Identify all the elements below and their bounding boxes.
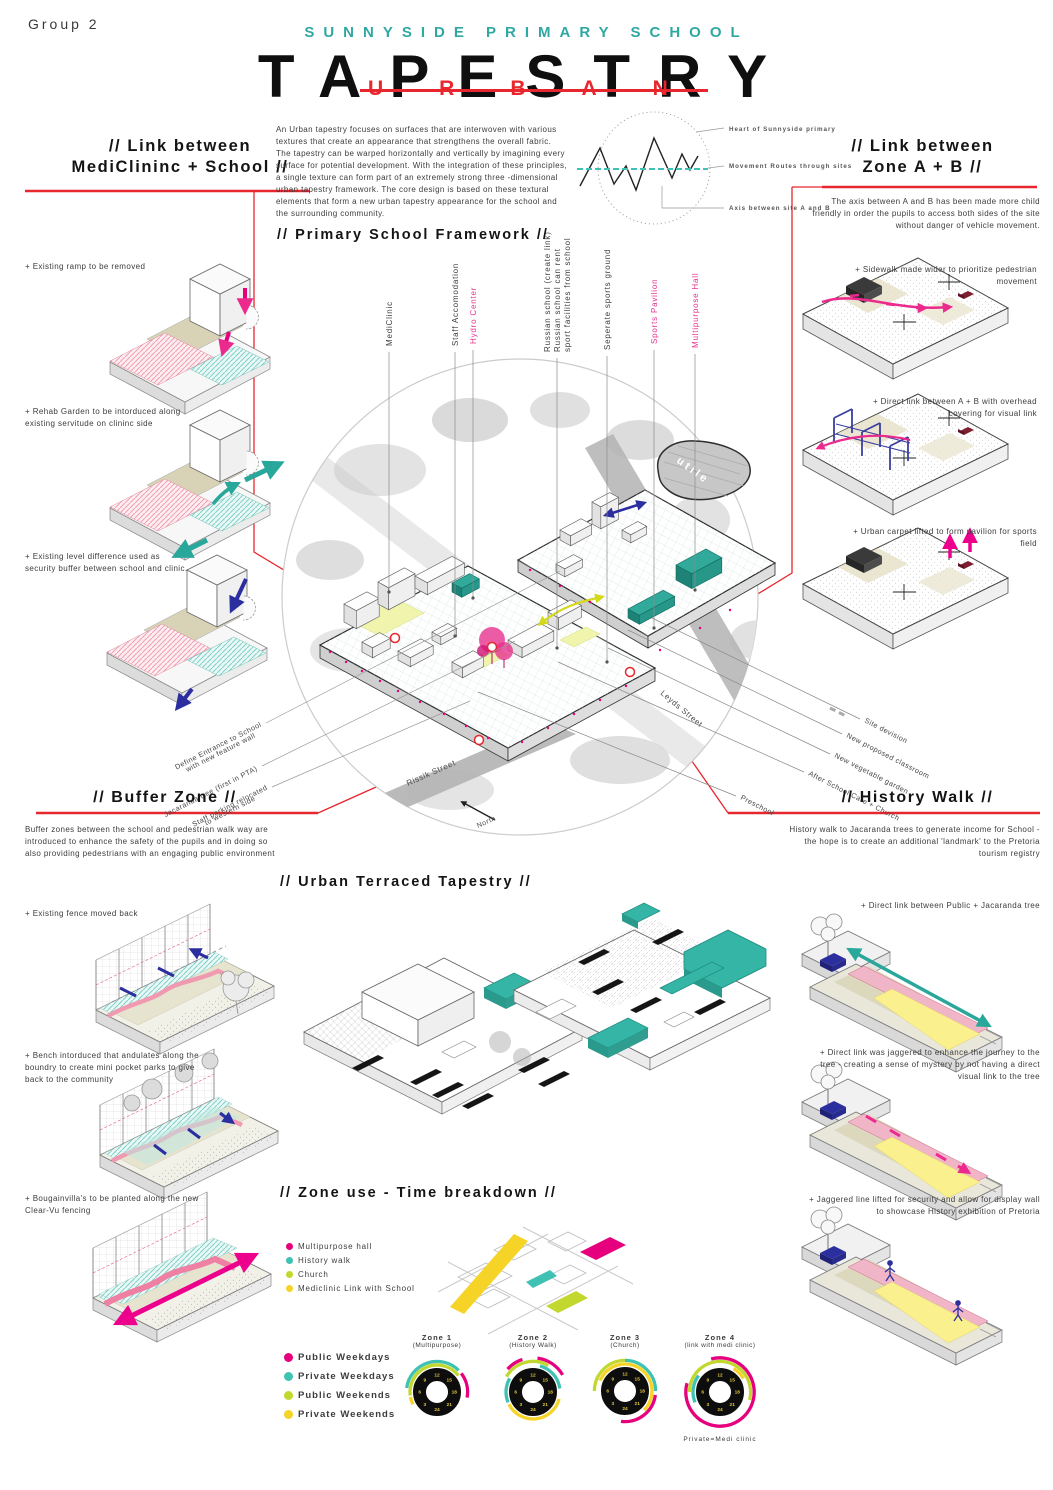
legend-label-private-weekdays: Private Weekdays — [298, 1371, 395, 1382]
svg-text:24: 24 — [717, 1407, 723, 1413]
concept-label-heart: Heart of Sunnyside primary — [729, 126, 836, 133]
svg-text:21: 21 — [543, 1402, 549, 1408]
heading-terraced: // Urban Terraced Tapestry // — [280, 874, 532, 890]
clock-title-zone3: Zone 3 — [570, 1333, 680, 1342]
svg-text:9: 9 — [519, 1377, 522, 1383]
svg-text:15: 15 — [447, 1377, 453, 1383]
annotation-sidewalk: + Sidewalk made wider to prioritize pede… — [855, 264, 1037, 288]
heading-history-walk: // History Walk // — [790, 788, 1045, 809]
legend-item-church: Church — [286, 1270, 415, 1279]
annotation-bench: + Bench intorduced that andulates along … — [25, 1050, 200, 1086]
svg-text:21: 21 — [447, 1402, 453, 1408]
clock-chart-zone4: 1215182124369 — [678, 1350, 762, 1439]
heading-framework: // Primary School Framework // — [277, 227, 549, 243]
svg-text:3: 3 — [519, 1402, 522, 1408]
map-label-russian-2: Russian school can rent — [553, 248, 562, 352]
legend-dot-multipurpose — [286, 1243, 293, 1250]
intro-paragraph: An Urban tapestry focuses on surfaces th… — [276, 124, 568, 220]
street-label-leyds: Leyds Street — [659, 689, 705, 730]
legend-dot-private-weekdays — [284, 1372, 293, 1381]
legend-item-private-weekends: Private Weekends — [284, 1409, 395, 1420]
heading-zone-ab: // Link between Zone A + B // — [800, 136, 1045, 179]
annotation-fence-moved: + Existing fence moved back — [25, 908, 200, 920]
clinic-diagram-1 — [110, 264, 270, 414]
svg-text:12: 12 — [717, 1372, 723, 1378]
svg-text:12: 12 — [530, 1372, 536, 1378]
clock-footnote: Private=Medi clinic — [655, 1436, 785, 1443]
map-top-labels: MediClinic Staff Accomodation Hydro Cent… — [385, 231, 700, 663]
map-label-preschool: Preschool — [739, 793, 776, 818]
annotation-ramp: + Existing ramp to be removed — [25, 261, 185, 273]
annotation-level-difference: + Existing level difference used as secu… — [25, 551, 190, 575]
legend-label-public-weekdays: Public Weekdays — [298, 1352, 390, 1363]
ramp-diagram-3 — [802, 1207, 1002, 1365]
clock-chart-zone2: 1215182124369 — [491, 1350, 575, 1439]
blob-label: utile — [674, 455, 711, 487]
clock-sub-zone4: (link with medi clinic) — [665, 1342, 775, 1349]
poster-page: Heart of Sunnyside primary Movement Rout… — [0, 0, 1053, 1490]
legend-dot-church — [286, 1271, 293, 1278]
utile-blob: utile — [658, 441, 751, 500]
legend-time: Public Weekdays Private Weekdays Public … — [284, 1352, 395, 1425]
svg-text:15: 15 — [730, 1377, 736, 1383]
legend-dot-public-weekends — [284, 1391, 293, 1400]
legend-label-private-weekends: Private Weekends — [298, 1409, 395, 1420]
heading-zone-use: // Zone use - Time breakdown // — [280, 1185, 557, 1201]
clinic-diagram-2 — [110, 410, 279, 560]
svg-text:18: 18 — [548, 1390, 554, 1396]
annotation-overhead-cover: + Direct link between A + B with overhea… — [847, 396, 1037, 420]
svg-text:18: 18 — [452, 1390, 458, 1396]
terraced-tapestry-illustration — [304, 903, 770, 1114]
svg-text:9: 9 — [423, 1377, 426, 1383]
map-label-hydro: Hydro Center — [469, 287, 478, 344]
legend-item-mediclinic-link: Mediclinic Link with School — [286, 1284, 415, 1293]
svg-text:12: 12 — [434, 1372, 440, 1378]
map-label-pavilion: Sports Pavilion — [650, 279, 659, 344]
zone-ab-paragraph: The axis between A and B has been made m… — [812, 196, 1040, 232]
svg-text:3: 3 — [611, 1401, 614, 1407]
aerial-texture — [296, 392, 790, 834]
svg-text:12: 12 — [622, 1371, 628, 1377]
clock-title-zone1: Zone 1 — [382, 1333, 492, 1342]
legend-label-church: Church — [298, 1270, 329, 1279]
svg-text:3: 3 — [423, 1402, 426, 1408]
legend-label-multipurpose: Multipurpose hall — [298, 1242, 372, 1251]
annotation-rehab-garden: + Rehab Garden to be intorduced along ex… — [25, 406, 190, 430]
svg-text:6: 6 — [701, 1390, 704, 1396]
annotation-bougainvilla: + Bougainvilla's to be planted along the… — [25, 1193, 210, 1217]
heading-zone-ab-line2: Zone A + B // — [800, 157, 1045, 178]
map-label-entrance-1: Define Entrance to School — [173, 720, 263, 772]
svg-text:3: 3 — [706, 1402, 709, 1408]
svg-text:9: 9 — [706, 1377, 709, 1383]
svg-text:24: 24 — [530, 1407, 536, 1413]
framework-map: utile MediClinic Staff Accomodation Hydr… — [162, 231, 931, 835]
map-label-russian-3: sport facilities from school — [563, 238, 572, 352]
map-label-mediclinic: MediClinic — [385, 301, 394, 346]
legend-item-historywalk: History walk — [286, 1256, 415, 1265]
clock-sub-zone3: (Church) — [570, 1342, 680, 1349]
legend-label-historywalk: History walk — [298, 1256, 351, 1265]
zone-use-plan — [438, 1227, 633, 1334]
clinic-diagram-3 — [107, 555, 267, 707]
legend-label-mediclinic-link: Mediclinic Link with School — [298, 1284, 415, 1293]
map-label-russian-1: Russian school (create link) — [543, 231, 552, 352]
svg-text:24: 24 — [622, 1406, 628, 1412]
site-model — [320, 490, 775, 761]
svg-text:18: 18 — [735, 1390, 741, 1396]
svg-text:21: 21 — [730, 1402, 736, 1408]
heading-zone-ab-line1: // Link between — [800, 136, 1045, 157]
street-label-rissik: Rissik Street — [405, 758, 457, 788]
legend-item-public-weekdays: Public Weekdays — [284, 1352, 395, 1363]
heading-buffer-zone: // Buffer Zone // — [20, 788, 310, 809]
clock-title-zone4: Zone 4 — [665, 1333, 775, 1342]
map-label-staff: Staff Accomodation — [451, 263, 460, 346]
map-label-classroom: New proposed classroom — [845, 731, 931, 781]
svg-text:18: 18 — [640, 1389, 646, 1395]
history-walk-paragraph: History walk to Jacaranda trees to gener… — [788, 824, 1040, 860]
school-title: SUNNYSIDE PRIMARY SCHOOL — [0, 24, 1053, 41]
clock-chart-zone1: 1215182124369 — [395, 1350, 479, 1439]
clock-chart-zone3: 1215182124369 — [583, 1349, 667, 1438]
clock-sub-zone1: (Multipurpose) — [382, 1342, 492, 1349]
annotation-urban-carpet: + Urban carpet lifted to form pavilion f… — [852, 526, 1037, 550]
svg-text:6: 6 — [606, 1389, 609, 1395]
legend-dot-historywalk — [286, 1257, 293, 1264]
legend-item-private-weekdays: Private Weekdays — [284, 1371, 395, 1382]
annotation-jaggered-link: + Direct link was jaggered to enhance th… — [802, 1047, 1040, 1083]
map-label-site-devision: Site devision — [863, 716, 909, 745]
map-label-multipurpose: Multipurpose Hall — [691, 273, 700, 348]
svg-text:21: 21 — [635, 1401, 641, 1407]
map-label-sports-ground: Seperate sports ground — [603, 249, 612, 350]
legend-label-public-weekends: Public Weekends — [298, 1390, 391, 1401]
map-street-labels: Leyds Street Rissik Street North — [405, 689, 704, 830]
map-label-entrance-2: with new feature wall — [183, 731, 257, 775]
svg-text:24: 24 — [434, 1407, 440, 1413]
svg-text:9: 9 — [611, 1376, 614, 1382]
buffer-zone-paragraph: Buffer zones between the school and pede… — [25, 824, 283, 860]
legend-item-multipurpose: Multipurpose hall — [286, 1242, 415, 1251]
legend-dot-mediclinic-link — [286, 1285, 293, 1292]
svg-text:15: 15 — [543, 1377, 549, 1383]
svg-text:6: 6 — [418, 1390, 421, 1396]
svg-text:15: 15 — [635, 1376, 641, 1382]
legend-dot-public-weekdays — [284, 1353, 293, 1362]
annotation-display-wall: + Jaggered line lifted for security and … — [806, 1194, 1040, 1218]
annotation-direct-link: + Direct link between Public + Jacaranda… — [808, 900, 1040, 912]
title-overlay-urban: URBAN — [368, 77, 708, 101]
legend-item-public-weekends: Public Weekends — [284, 1390, 395, 1401]
fence-diagram-1 — [96, 904, 274, 1054]
north-label: North — [476, 815, 497, 830]
legend-zones: Multipurpose hall History walk Church Me… — [286, 1242, 415, 1298]
svg-text:6: 6 — [514, 1390, 517, 1396]
legend-dot-private-weekends — [284, 1410, 293, 1419]
